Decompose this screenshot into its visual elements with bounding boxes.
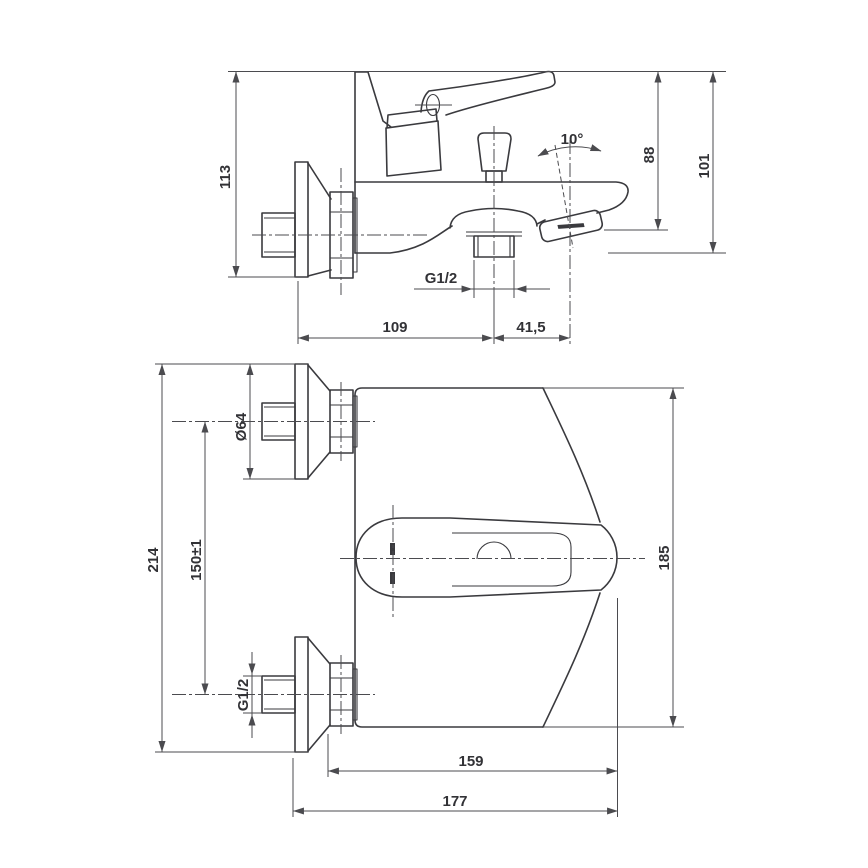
shower-outlet-elbow xyxy=(539,209,604,242)
side-view-wall-connection xyxy=(262,162,357,278)
dim-label-177: 177 xyxy=(442,793,467,810)
side-view-body xyxy=(355,72,628,258)
technical-drawing-canvas: 113 88 101 10° G1/2 109 41,5 xyxy=(0,0,868,868)
dim-label-g12-bottom: G1/2 xyxy=(235,679,252,712)
side-view-dimensions: 113 88 101 10° G1/2 109 41,5 xyxy=(217,72,726,345)
depth-extension-lines xyxy=(293,598,618,817)
dim-label-214: 214 xyxy=(145,547,162,573)
dim-label-101: 101 xyxy=(696,153,713,178)
lever-plan-outline xyxy=(356,518,617,597)
cartridge-collar-outline xyxy=(386,109,441,176)
body-outline xyxy=(355,388,543,727)
width-extension-lines xyxy=(155,364,308,752)
spout-bell-outline xyxy=(450,209,545,229)
dim-label-150: 150±1 xyxy=(188,539,205,581)
flange-plate-outline xyxy=(295,162,308,277)
dim-label-10deg: 10° xyxy=(561,131,584,148)
dim-label-g12-top: G1/2 xyxy=(425,270,458,287)
dim-label-64: Ø64 xyxy=(233,412,250,441)
dim-label-41-5: 41,5 xyxy=(516,319,545,336)
front-view-dimensions: 214 150±1 Ø64 G1/2 185 159 177 xyxy=(145,364,684,817)
spout-underside-outline xyxy=(355,226,452,253)
shower-elbow-section-mark xyxy=(557,219,584,233)
lever-handle-outline xyxy=(421,72,555,116)
lever-inner-contour xyxy=(452,533,571,586)
body-back-outline xyxy=(355,72,391,253)
dim-label-113: 113 xyxy=(217,165,234,189)
front-view-body xyxy=(355,388,617,727)
side-view: 113 88 101 10° G1/2 109 41,5 xyxy=(217,72,726,345)
dim-label-185: 185 xyxy=(656,545,673,570)
dim-label-109: 109 xyxy=(382,319,407,336)
side-view-centerlines xyxy=(252,126,573,344)
diverter-knob-plan-arc xyxy=(477,542,511,559)
dim-label-88: 88 xyxy=(641,147,658,164)
front-view: 214 150±1 Ø64 G1/2 185 159 177 xyxy=(145,364,684,817)
dim-label-159: 159 xyxy=(458,753,483,770)
flange-cone-outline xyxy=(308,163,331,276)
